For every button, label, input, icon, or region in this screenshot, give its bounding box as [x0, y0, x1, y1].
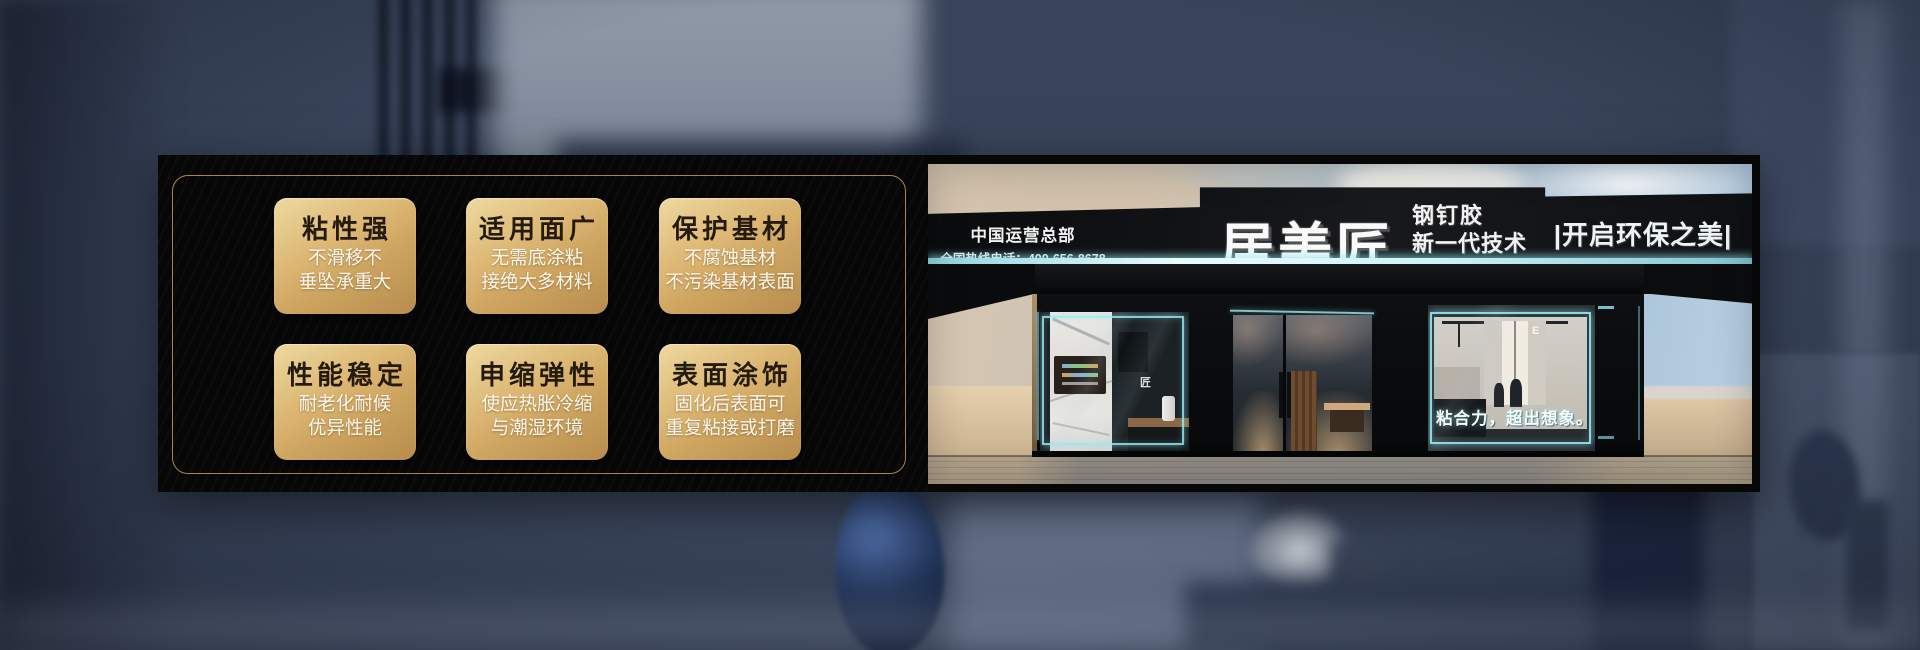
feature-card-adhesion: 粘性强 不滑移不 垂坠承重大 [274, 198, 416, 314]
feature-line: 重复粘接或打磨 [659, 416, 801, 440]
feature-line: 耐老化耐候 [274, 392, 416, 416]
feature-card-stable: 性能稳定 耐老化耐候 优异性能 [274, 344, 416, 460]
feature-line: 不腐蚀基材 [659, 246, 801, 270]
feature-line: 垂坠承重大 [274, 270, 416, 294]
feature-line: 无需底涂粘 [466, 246, 608, 270]
feature-line: 使应热胀冷缩 [466, 392, 608, 416]
feature-title: 表面涂饰 [659, 355, 801, 392]
features-panel: 粘性强 不滑移不 垂坠承重大 适用面广 无需底涂粘 接绝大多材料 保护基材 不腐… [158, 155, 928, 492]
feature-title: 适用面广 [466, 209, 608, 246]
feature-card-elastic: 申缩弹性 使应热胀冷缩 与潮湿环境 [466, 344, 608, 460]
feature-line: 接绝大多材料 [466, 270, 608, 294]
feature-card-wide-use: 适用面广 无需底涂粘 接绝大多材料 [466, 198, 608, 314]
feature-title: 申缩弹性 [466, 355, 608, 392]
feature-title: 粘性强 [274, 209, 416, 246]
feature-title: 保护基材 [659, 209, 801, 246]
feature-line: 固化后表面可 [659, 392, 801, 416]
feature-line: 不污染基材表面 [659, 270, 801, 294]
feature-line: 优异性能 [274, 416, 416, 440]
feature-line: 不滑移不 [274, 246, 416, 270]
feature-line: 与潮湿环境 [466, 416, 608, 440]
promo-banner-stage: 粘性强 不滑移不 垂坠承重大 适用面广 无需底涂粘 接绝大多材料 保护基材 不腐… [0, 0, 1920, 650]
feature-card-protect-substrate: 保护基材 不腐蚀基材 不污染基材表面 [659, 198, 801, 314]
storefront-photo: 中国运营总部 全国热线电话：400-656-8678 居美匠 钢钉胶 新一代技术… [928, 164, 1752, 484]
feature-title: 性能稳定 [274, 355, 416, 392]
feature-card-surface-finish: 表面涂饰 固化后表面可 重复粘接或打磨 [659, 344, 801, 460]
photo-vignette [928, 164, 1752, 484]
